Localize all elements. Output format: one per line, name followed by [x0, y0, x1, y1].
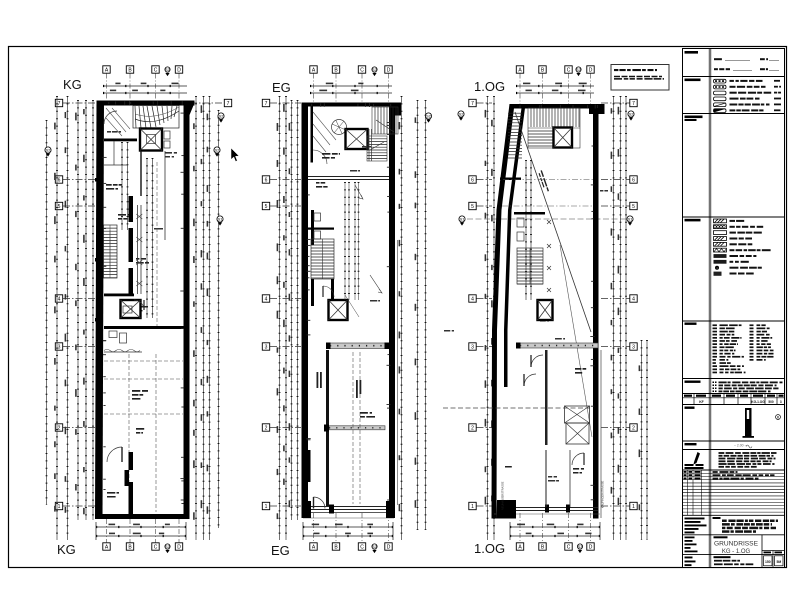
- svg-text:7: 7: [265, 101, 268, 107]
- svg-text:5: 5: [632, 204, 635, 210]
- svg-text:D: D: [589, 67, 593, 73]
- svg-text:5: 5: [471, 204, 474, 210]
- svg-text:2: 2: [265, 425, 268, 431]
- svg-text:5: 5: [58, 204, 61, 210]
- svg-text:7: 7: [58, 101, 61, 107]
- svg-text:C: C: [154, 544, 158, 550]
- svg-text:S2: S2: [426, 114, 432, 119]
- svg-text:S1: S1: [460, 217, 466, 222]
- svg-text:D: D: [589, 544, 593, 550]
- svg-text:KG - 1.OG: KG - 1.OG: [722, 549, 751, 555]
- svg-text:~ 2.00 ~: ~ 2.00 ~: [734, 443, 746, 447]
- svg-text:6: 6: [471, 177, 474, 183]
- svg-text:5: 5: [265, 204, 268, 210]
- svg-text:2: 2: [632, 425, 635, 431]
- svg-text:2: 2: [471, 425, 474, 431]
- svg-text:4: 4: [265, 296, 268, 302]
- svg-text:7: 7: [471, 101, 474, 107]
- svg-text:KF: KF: [699, 400, 704, 404]
- svg-text:3: 3: [780, 400, 782, 404]
- svg-text:KAUFINGERSTRASSE: KAUFINGERSTRASSE: [601, 480, 605, 508]
- svg-text:1.OG: 1.OG: [474, 79, 505, 94]
- svg-text:S2: S2: [219, 114, 225, 119]
- svg-text:S3: S3: [165, 544, 171, 549]
- svg-text:KG-1.OG: KG-1.OG: [751, 400, 765, 404]
- svg-text:NEUHAUSERSTRASSE: NEUHAUSERSTRASSE: [501, 481, 505, 510]
- svg-text:3: 3: [471, 344, 474, 350]
- svg-text:3: 3: [632, 344, 635, 350]
- svg-text:D: D: [177, 544, 181, 550]
- svg-text:150: 150: [765, 560, 771, 564]
- svg-text:C: C: [360, 544, 364, 550]
- svg-text:S2: S2: [215, 148, 221, 153]
- svg-text:4: 4: [632, 296, 635, 302]
- svg-text:S3: S3: [372, 67, 378, 72]
- svg-text:4: 4: [471, 296, 474, 302]
- svg-text:1: 1: [632, 504, 635, 510]
- svg-text:6: 6: [632, 177, 635, 183]
- svg-text:6: 6: [265, 177, 268, 183]
- svg-text:KG: KG: [57, 542, 76, 557]
- svg-text:EG: EG: [271, 543, 290, 558]
- svg-text:C: C: [567, 544, 571, 550]
- svg-text:6: 6: [58, 177, 61, 183]
- svg-text:S3: S3: [165, 67, 171, 72]
- svg-text:C: C: [567, 67, 571, 73]
- svg-text:S3: S3: [576, 67, 582, 72]
- svg-text:3: 3: [58, 344, 61, 350]
- svg-text:D: D: [387, 67, 391, 73]
- svg-text:KG: KG: [63, 77, 82, 92]
- svg-text:S1: S1: [628, 217, 634, 222]
- svg-text:S3: S3: [372, 544, 378, 549]
- svg-text:1: 1: [471, 504, 474, 510]
- svg-text:D: D: [387, 544, 391, 550]
- svg-text:S3: S3: [578, 544, 584, 549]
- svg-text:1.OG: 1.OG: [474, 541, 505, 556]
- svg-text:7: 7: [227, 101, 230, 107]
- svg-text:S2: S2: [459, 112, 465, 117]
- svg-text:1: 1: [265, 504, 268, 510]
- svg-text:4: 4: [58, 296, 61, 302]
- svg-text:D: D: [177, 67, 181, 73]
- svg-text:EG: EG: [272, 80, 291, 95]
- svg-text:2: 2: [58, 425, 61, 431]
- svg-text:GRUNDRISSE: GRUNDRISSE: [714, 541, 759, 548]
- svg-text:5M: 5M: [776, 560, 781, 564]
- svg-text:S2: S2: [629, 112, 635, 117]
- svg-text:3: 3: [265, 344, 268, 350]
- svg-text:S1: S1: [218, 217, 224, 222]
- svg-text:1: 1: [58, 504, 61, 510]
- svg-text:500: 500: [768, 400, 774, 404]
- svg-text:C: C: [360, 67, 364, 73]
- svg-text:S2: S2: [46, 148, 52, 153]
- svg-text:7: 7: [632, 101, 635, 107]
- svg-text:C: C: [154, 67, 158, 73]
